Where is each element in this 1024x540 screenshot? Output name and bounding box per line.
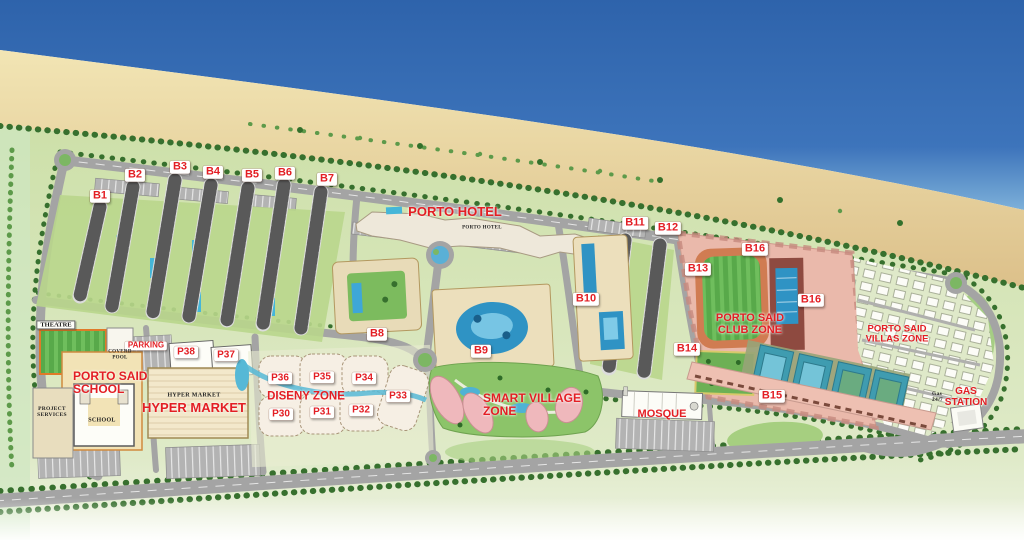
club-pool — [769, 258, 805, 351]
b8-block — [332, 258, 422, 334]
west-green-strip — [0, 126, 30, 540]
b10-block — [573, 235, 633, 362]
smart-village-zone — [423, 362, 602, 438]
bottom-fade — [0, 498, 1024, 540]
project-services-building — [33, 388, 73, 458]
school-zone — [62, 352, 142, 450]
disney-zone — [235, 345, 434, 467]
stadium-field — [694, 247, 769, 349]
site-plan-svg — [0, 0, 1024, 540]
hyper-market-building — [148, 368, 248, 438]
b9-block — [432, 284, 554, 372]
site-plan-map: B1B2B3B4B5B6B7B8B9B10B11B12B13B14B15B16B… — [0, 0, 1024, 540]
gas-station-building — [950, 404, 983, 432]
